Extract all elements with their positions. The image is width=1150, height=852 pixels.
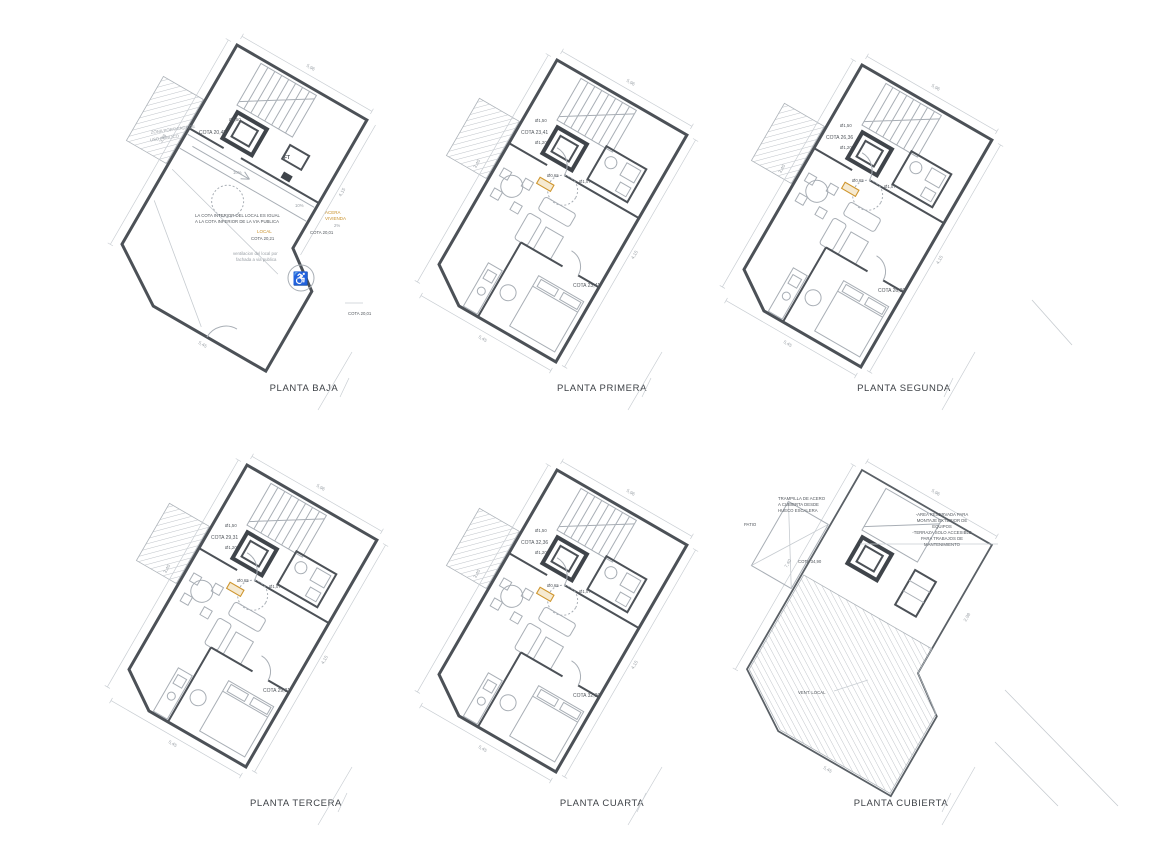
cota-label: COTA 26,36: [878, 288, 905, 294]
dim-label: 5,45: [168, 739, 179, 748]
door-tag: Ø0,65: [547, 583, 559, 588]
plan-planta-tercera: 5,96 3,40 4,15 5,45 Ø1,50 COTA 29,31 Ø1,…: [65, 424, 402, 792]
turning-circle-tag: Ø1,20: [535, 140, 547, 145]
trapdoor-note: TRAMPILLA DE ACERO: [778, 496, 826, 501]
cota-label: COTA 26,36: [826, 135, 853, 141]
plan-planta-baja: 5,96 3,98 4,15 5,45 ZONA PORTICADA DE US…: [56, 4, 410, 381]
vent-note: ventilacion del local por: [233, 251, 278, 256]
local-label: LOCAL: [257, 229, 272, 234]
plan-title-primera: PLANTA PRIMERA: [557, 383, 647, 394]
local-note: LA COTA INTERIOR DEL LOCAL ES IGUAL: [195, 213, 280, 218]
reserved-area-note: -AREA RESERVADA PARA: [916, 512, 969, 517]
plan-planta-cuarta: 5,96 3,40 4,15 5,45 Ø1,50 COTA 32,36 Ø1,…: [375, 429, 712, 797]
turning-circle-tag: Ø1,50: [535, 528, 547, 533]
cota-label: COTA 20,45: [199, 130, 226, 136]
cota-label: COTA 20,21: [251, 236, 275, 241]
reserved-area-note: MONTAJE EXTERIOR DE: [917, 518, 968, 523]
boundary-lines: [318, 300, 1118, 825]
door-tag: Ø0,65: [852, 178, 864, 183]
dim-label: 5,96: [316, 483, 327, 492]
plan-title-segunda: PLANTA SEGUNDA: [857, 383, 951, 394]
turning-circle-tag: Ø1,20: [225, 545, 237, 550]
cota-label: COTA 32,36: [521, 540, 548, 546]
dim-label: 2,98: [963, 612, 972, 623]
dim-label: 5,45: [198, 340, 209, 349]
cota-label: COTA 34,90: [798, 559, 822, 564]
turning-circle-tag: Ø1,50: [225, 523, 237, 528]
turning-circle-tag: Ø1,50: [840, 123, 852, 128]
dim-label: 5,45: [478, 744, 489, 753]
dim-label: 5,96: [931, 83, 942, 92]
reserved-area-note: MANTENIMIENTO: [924, 542, 961, 547]
dim-label: 5,45: [783, 339, 794, 348]
dim-label: 5,96: [626, 78, 637, 87]
turning-circle-tag: Ø1,50: [229, 117, 241, 122]
dim-label: 5,96: [626, 488, 637, 497]
acera-label: ACERA: [325, 210, 341, 215]
reserved-area-note: -TERRAZA SOLO ACCESIBLE: [912, 530, 972, 535]
cota-label: COTA 20,01: [310, 230, 334, 235]
plan-planta-segunda: 5,96 3,40 4,15 5,45 Ø1,50 COTA 26,36 Ø1,…: [680, 24, 1017, 392]
dim-label: 5,96: [306, 63, 317, 72]
turning-circle-tag: Ø1,20: [840, 145, 852, 150]
dim-label: 5,45: [478, 334, 489, 343]
plan-title-cuarta: PLANTA CUARTA: [560, 798, 644, 809]
local-note: A LA COTA INFERIOR DE LA VIA PUBLICA: [195, 219, 279, 224]
dim-label: 7,40: [783, 558, 792, 569]
drawing-sheet: 5,96 3,98 4,15 5,45 ZONA PORTICADA DE US…: [0, 0, 1150, 852]
plan-planta-primera: 5,96 3,40 4,15 5,45 Ø1,50 COTA 23,41 Ø1,…: [375, 19, 712, 387]
cota-label: COTA 23,41: [521, 130, 548, 136]
dim-label: 5,45: [823, 765, 834, 774]
cota-label: COTA 20,01: [348, 311, 372, 316]
plan-title-cubierta: PLANTA CUBIERTA: [854, 798, 949, 809]
vent-note: fachada a via publica: [236, 257, 277, 262]
ramp-slope-label: 10%: [295, 203, 304, 208]
door-tag: Ø1,07: [579, 179, 591, 184]
vent-local-label: VENT. LOCAL: [798, 690, 826, 695]
ft-label: FT: [284, 155, 290, 161]
turning-circle-tag: Ø1,50: [535, 118, 547, 123]
dim-label: 5,96: [931, 488, 942, 497]
door-tag: Ø1,07: [269, 584, 281, 589]
door-tag: Ø0,65: [237, 578, 249, 583]
door-tag: Ø0,65: [547, 173, 559, 178]
cota-label: COTA 29,31: [263, 688, 290, 694]
ramp-slope-label: 10%: [233, 170, 242, 175]
door-tag: Ø1,07: [579, 589, 591, 594]
turning-circle-tag: Ø1,20: [535, 550, 547, 555]
svg-text:♿: ♿: [293, 271, 309, 286]
cota-label: COTA 23,41: [573, 283, 600, 289]
reserved-area-note: EQUIPOS: [932, 524, 952, 529]
patio-label: PATIO: [744, 522, 757, 527]
floor-plans-svg: 5,96 3,98 4,15 5,45 ZONA PORTICADA DE US…: [0, 0, 1150, 852]
plan-planta-cubierta: 5,96 7,40 2,98 5,45 PATIO TRAMPILLA DE A…: [681, 429, 1035, 806]
trapdoor-note: A CUBIERTA DESDE: [778, 502, 819, 507]
acera-label: VIVIENDA: [325, 216, 346, 221]
cota-label: COTA 32,36: [573, 693, 600, 699]
trapdoor-note: HUECO ESCALERA: [778, 508, 818, 513]
door-tag: Ø1,07: [884, 184, 896, 189]
slope-label: 2%: [334, 223, 340, 228]
reserved-area-note: PARA TRABAJOS DE: [921, 536, 963, 541]
cota-label: COTA 29,31: [211, 535, 238, 541]
